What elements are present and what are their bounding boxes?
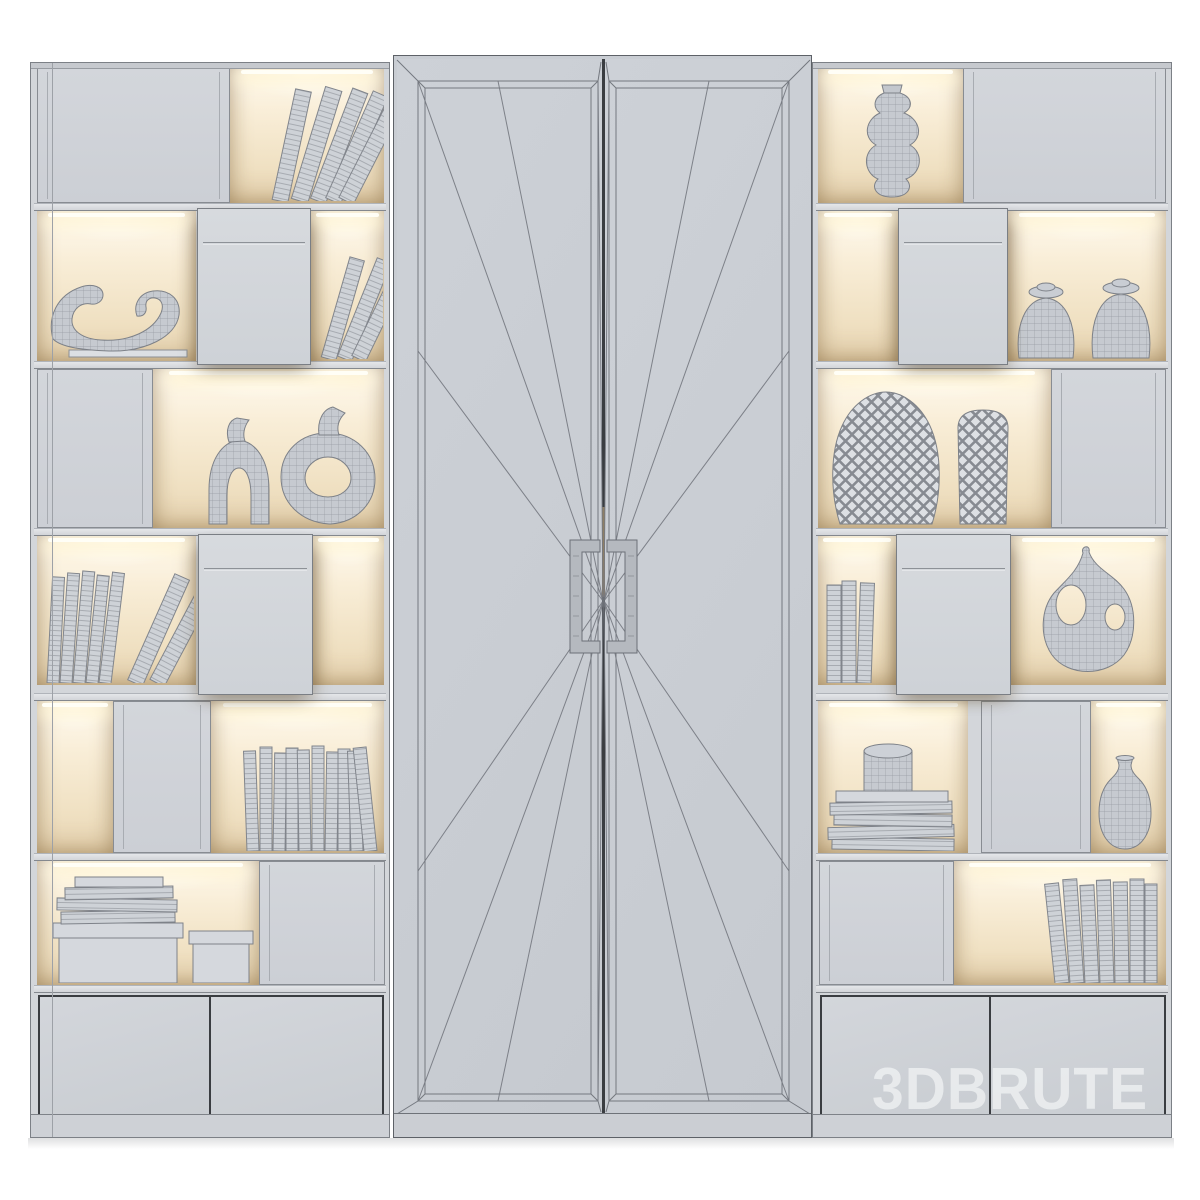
cabinet-door-panel bbox=[819, 861, 954, 985]
display-niche bbox=[818, 536, 896, 685]
floor-shadow bbox=[28, 1138, 1174, 1149]
cabinet-door-panel bbox=[37, 68, 230, 203]
led-strip bbox=[48, 538, 185, 542]
display-niche bbox=[1008, 211, 1166, 361]
led-strip bbox=[829, 703, 958, 707]
shelf-divider bbox=[34, 985, 386, 993]
leaning-books bbox=[234, 71, 384, 201]
led-strip bbox=[834, 371, 1034, 375]
top-rail bbox=[813, 63, 1171, 69]
drawer-front bbox=[38, 995, 211, 1117]
led-strip bbox=[1022, 538, 1155, 542]
display-niche bbox=[230, 68, 384, 203]
led-strip bbox=[223, 703, 372, 707]
plinth-base bbox=[394, 1113, 811, 1137]
left-bookcase bbox=[30, 62, 390, 1138]
leaning-books bbox=[311, 247, 383, 359]
led-strip bbox=[823, 538, 890, 542]
book-stack-on-boxes bbox=[39, 861, 259, 983]
book-row bbox=[956, 865, 1161, 983]
cabinet-door-panel bbox=[37, 369, 153, 528]
shelf-divider bbox=[816, 853, 1168, 861]
display-niche bbox=[313, 536, 384, 685]
render-canvas: 3DBRUTE bbox=[0, 0, 1200, 1200]
book-trio bbox=[822, 573, 892, 683]
display-niche bbox=[818, 701, 968, 853]
led-strip bbox=[42, 703, 107, 707]
display-niche bbox=[818, 68, 963, 203]
cabinet-door-panel bbox=[113, 701, 211, 853]
display-niche bbox=[211, 701, 384, 853]
led-strip bbox=[1096, 703, 1161, 707]
cabinet-door-panel bbox=[981, 701, 1091, 853]
display-niche bbox=[818, 211, 898, 361]
organic-pierced-vase bbox=[1023, 543, 1153, 683]
watermark: 3DBRUTE bbox=[872, 1055, 1148, 1124]
display-niche bbox=[311, 211, 384, 361]
display-niche bbox=[37, 211, 196, 361]
top-rail bbox=[31, 63, 389, 69]
wireframe-overlay bbox=[394, 56, 813, 1139]
ring-vases bbox=[191, 402, 381, 526]
display-niche bbox=[1011, 536, 1166, 685]
display-niche bbox=[153, 369, 384, 528]
cabinet-door-panel bbox=[963, 68, 1166, 203]
led-strip bbox=[828, 70, 953, 74]
drawer-front bbox=[209, 995, 384, 1117]
book-stack-with-cylinder-jar bbox=[822, 733, 962, 851]
display-niche bbox=[1091, 701, 1166, 853]
led-strip bbox=[48, 213, 185, 217]
led-strip bbox=[316, 213, 379, 217]
bottle-vase bbox=[1097, 755, 1153, 851]
led-strip bbox=[318, 538, 379, 542]
drawer-box bbox=[896, 534, 1011, 695]
leaning-book-stack bbox=[39, 561, 194, 683]
display-niche bbox=[954, 861, 1166, 985]
shelf-divider bbox=[34, 853, 386, 861]
cabinet-door-panel bbox=[1051, 369, 1166, 528]
drawer-box bbox=[898, 208, 1008, 365]
plinth-base bbox=[31, 1114, 389, 1137]
diamond-pattern-vases bbox=[826, 376, 1016, 526]
display-niche bbox=[37, 701, 113, 853]
shelf-divider bbox=[816, 985, 1168, 993]
twisted-vase bbox=[846, 83, 938, 201]
led-strip bbox=[824, 213, 893, 217]
center-cabinet bbox=[393, 55, 812, 1138]
led-strip bbox=[169, 371, 368, 375]
cabinet-door-panel bbox=[259, 861, 385, 985]
display-niche bbox=[818, 369, 1051, 528]
display-niche bbox=[37, 536, 196, 685]
display-niche bbox=[37, 861, 259, 985]
drawer-box bbox=[198, 534, 313, 695]
led-strip bbox=[1019, 213, 1155, 217]
book-row bbox=[213, 729, 383, 851]
horn-sculpture bbox=[41, 255, 193, 359]
right-bookcase bbox=[812, 62, 1172, 1138]
ginger-jars bbox=[1013, 274, 1158, 359]
drawer-box bbox=[197, 208, 311, 365]
